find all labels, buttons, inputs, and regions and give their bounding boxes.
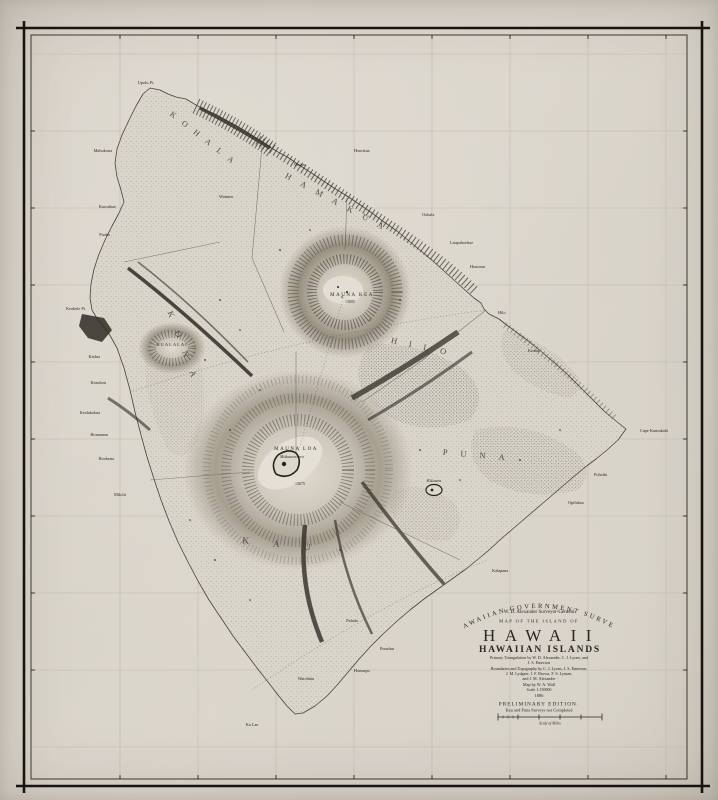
mauna-loa-label: MAUNA LOA bbox=[274, 447, 318, 452]
place-hilo: Hilo bbox=[498, 310, 506, 315]
mokuaweoweo-label: Mokuaweoweo bbox=[279, 454, 304, 459]
place-opihikao: Opihikao bbox=[568, 500, 584, 505]
place-keauhou: Keauhou bbox=[90, 380, 106, 385]
mauna-kea-elev: 13805 bbox=[345, 299, 355, 304]
place-honaunau: Honaunau bbox=[90, 432, 109, 437]
kilauea-crater bbox=[426, 485, 442, 496]
mauna-kea-label: MAUNA KEA bbox=[330, 293, 374, 298]
place-kealakekua: Kealakekua bbox=[80, 410, 100, 415]
kilauea-label: Kilauea bbox=[426, 478, 442, 483]
place-honuapo: Honuapo bbox=[354, 668, 370, 673]
scale-bar bbox=[498, 714, 602, 721]
island-title: HAWAII bbox=[483, 626, 601, 645]
scale-line: Scale 1:150000 bbox=[527, 687, 552, 692]
place-puako: Puako bbox=[99, 232, 110, 237]
credit-line-2: J. S. Emerson bbox=[528, 660, 551, 665]
map-of-line: MAP OF THE ISLAND OF bbox=[499, 619, 579, 624]
place-waipio: Waipio bbox=[294, 162, 306, 167]
place-milolii: Milolii bbox=[114, 492, 127, 497]
place-punaluu: Punaluu bbox=[380, 646, 395, 651]
place-honokaa: Honokaa bbox=[354, 148, 370, 153]
place-keaau: Keaau bbox=[528, 348, 540, 353]
place-honomu: Honomu bbox=[470, 264, 486, 269]
place-pohoiki: Pohoiki bbox=[594, 472, 608, 477]
year-line: 1886 bbox=[535, 693, 545, 698]
place-ookala: Ookala bbox=[422, 212, 435, 217]
place-kailua: Kailua bbox=[89, 354, 101, 359]
place-hookena: Hookena bbox=[98, 456, 114, 461]
scale-bar-label: Scale of Miles bbox=[539, 722, 561, 726]
map-sheet: KOHALA HAMAKUA HILO PUNA KAU KONA MAUNA … bbox=[0, 0, 718, 800]
surveyor-line: W. D. Alexander Surveyor-General bbox=[504, 610, 575, 615]
place-keahole: Keahole Pt. bbox=[66, 306, 86, 311]
group-title: HAWAIIAN ISLANDS bbox=[479, 645, 601, 655]
place-pahala: Pahala bbox=[346, 618, 358, 623]
mauna-kea-summit bbox=[323, 276, 363, 304]
place-laupahoehoe: Laupahoehoe bbox=[450, 240, 473, 245]
hualalai-label: HUALALAI bbox=[156, 342, 187, 347]
place-waiohinu: Waiohinu bbox=[298, 676, 315, 681]
place-kumukahi: Cape Kumukahi bbox=[640, 428, 669, 433]
place-mahukona: Mahukona bbox=[94, 148, 112, 153]
place-kalapana: Kalapana bbox=[492, 568, 508, 573]
place-waimea: Waimea bbox=[219, 194, 233, 199]
place-kalae: Ka Lae bbox=[246, 722, 259, 727]
hawaii-map-svg: KOHALA HAMAKUA HILO PUNA KAU KONA MAUNA … bbox=[0, 0, 718, 800]
credit-line-5: and J. M. Alexander bbox=[522, 676, 556, 681]
place-kawaihae: Kawaihae bbox=[99, 204, 116, 209]
mauna-loa-elev: 13675 bbox=[295, 481, 305, 486]
edition-note-line: Kau and Puna Surveys not Completed bbox=[506, 708, 574, 713]
place-upolu: Upolu Pt. bbox=[138, 80, 154, 85]
